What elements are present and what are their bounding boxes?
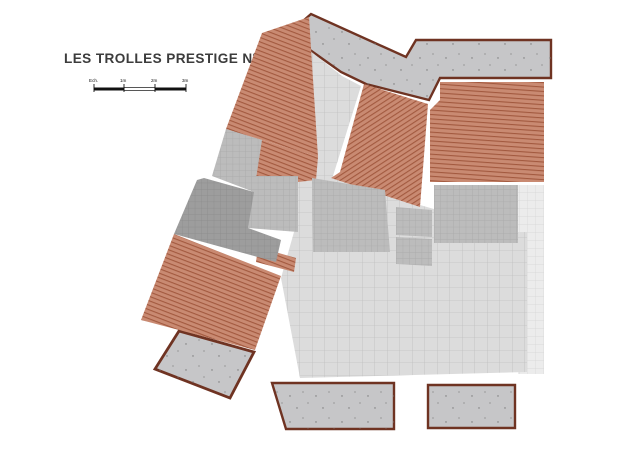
svg-text:Ech.: Ech.: [89, 78, 98, 83]
svg-text:2m: 2m: [151, 78, 158, 83]
svg-text:3m: 3m: [182, 78, 189, 83]
svg-text:LES TROLLES PRESTIGE N°3: LES TROLLES PRESTIGE N°3: [64, 51, 266, 66]
svg-text:1m: 1m: [120, 78, 127, 83]
